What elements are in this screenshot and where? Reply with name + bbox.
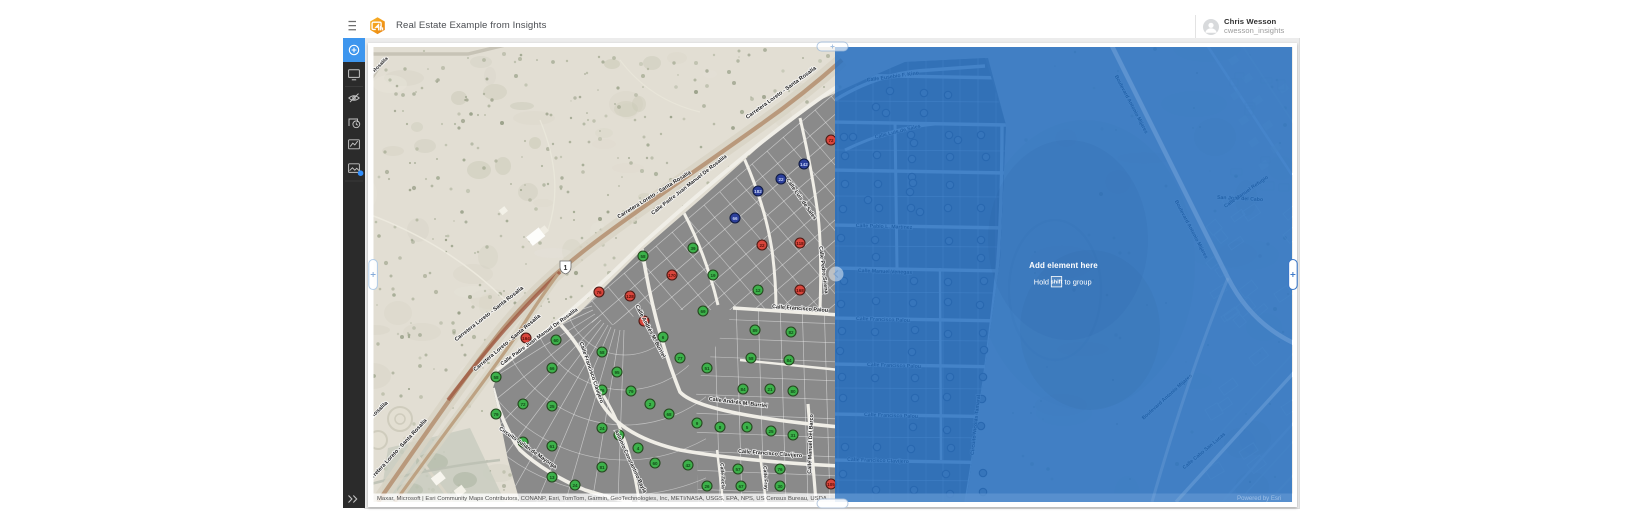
svg-text:84: 84 xyxy=(786,358,792,363)
svg-text:118: 118 xyxy=(796,241,804,246)
svg-text:79: 79 xyxy=(628,389,634,394)
svg-text:24: 24 xyxy=(599,426,605,431)
svg-text:61: 61 xyxy=(549,444,555,449)
svg-text:1: 1 xyxy=(564,265,568,272)
svg-text:Powered by Esri: Powered by Esri xyxy=(1237,495,1281,502)
svg-text:6: 6 xyxy=(662,335,665,340)
svg-text:25: 25 xyxy=(549,404,555,409)
svg-text:shift: shift xyxy=(1051,280,1063,286)
svg-text:5: 5 xyxy=(746,425,749,430)
svg-text:81: 81 xyxy=(599,465,605,470)
svg-text:12: 12 xyxy=(755,288,761,293)
svg-text:182: 182 xyxy=(754,189,762,194)
svg-text:to group: to group xyxy=(1065,277,1092,286)
svg-text:30: 30 xyxy=(777,484,783,489)
svg-text:76: 76 xyxy=(596,290,602,295)
svg-text:68: 68 xyxy=(666,412,672,417)
svg-text:19: 19 xyxy=(710,273,716,278)
svg-text:79: 79 xyxy=(493,412,499,417)
svg-text:76: 76 xyxy=(777,467,783,472)
svg-text:80: 80 xyxy=(790,389,796,394)
svg-text:105: 105 xyxy=(827,482,835,487)
svg-text:Calle Fray: Calle Fray xyxy=(761,466,768,490)
svg-text:67: 67 xyxy=(738,484,744,489)
svg-text:95: 95 xyxy=(614,370,620,375)
svg-text:60: 60 xyxy=(652,461,658,466)
svg-text:72: 72 xyxy=(520,402,526,407)
svg-text:22: 22 xyxy=(778,177,784,182)
svg-text:57: 57 xyxy=(735,467,741,472)
svg-text:77: 77 xyxy=(677,356,683,361)
svg-text:170: 170 xyxy=(668,273,676,278)
svg-text:8: 8 xyxy=(719,425,722,430)
svg-text:82: 82 xyxy=(788,330,794,335)
svg-text:39: 39 xyxy=(690,246,696,251)
svg-text:Hold: Hold xyxy=(1034,277,1049,286)
svg-text:58: 58 xyxy=(640,254,646,259)
svg-text:2: 2 xyxy=(649,402,652,407)
svg-text:9: 9 xyxy=(696,421,699,426)
svg-text:168: 168 xyxy=(796,288,804,293)
svg-text:58: 58 xyxy=(748,356,754,361)
svg-text:58: 58 xyxy=(599,350,605,355)
svg-text:58: 58 xyxy=(493,375,499,380)
svg-text:25: 25 xyxy=(768,429,774,434)
svg-text:42: 42 xyxy=(685,463,691,468)
svg-text:51: 51 xyxy=(704,366,710,371)
svg-text:4: 4 xyxy=(637,446,640,451)
svg-text:Maxar, Microsoft | Esri Commun: Maxar, Microsoft | Esri Community Maps C… xyxy=(377,496,827,502)
svg-text:Add element here: Add element here xyxy=(1029,261,1098,270)
svg-text:60: 60 xyxy=(553,338,559,343)
svg-text:128: 128 xyxy=(626,294,634,299)
svg-text:31: 31 xyxy=(790,433,796,438)
svg-text:66: 66 xyxy=(732,216,738,221)
svg-text:84: 84 xyxy=(740,387,746,392)
svg-text:21: 21 xyxy=(767,387,773,392)
svg-text:89: 89 xyxy=(752,328,758,333)
svg-text:142: 142 xyxy=(800,162,808,167)
svg-text:24: 24 xyxy=(572,483,578,488)
svg-text:69: 69 xyxy=(700,309,706,314)
svg-text:66: 66 xyxy=(549,366,555,371)
svg-text:22: 22 xyxy=(759,243,765,248)
svg-text:26: 26 xyxy=(704,484,710,489)
svg-text:13: 13 xyxy=(549,475,555,480)
svg-text:72: 72 xyxy=(828,138,834,143)
